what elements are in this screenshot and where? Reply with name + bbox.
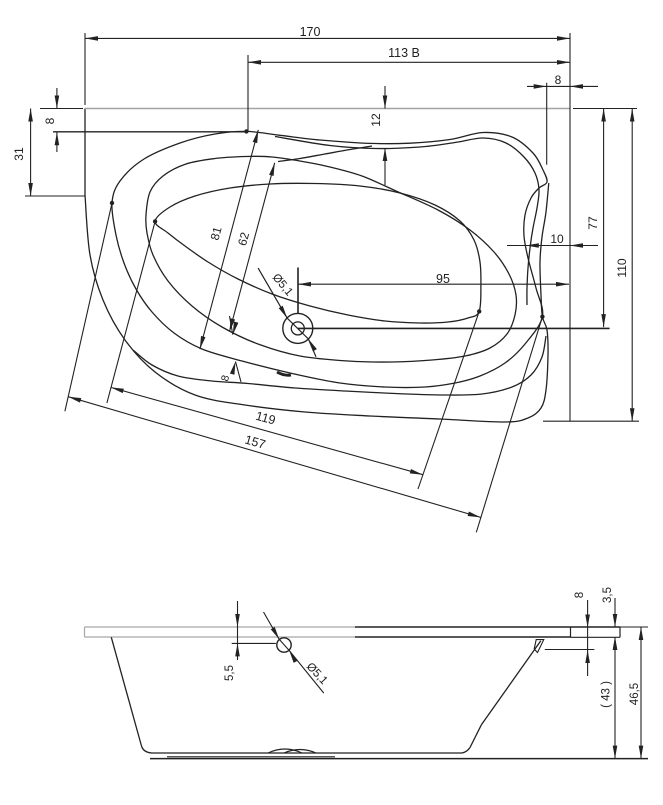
svg-text:95: 95 — [436, 272, 450, 286]
svg-text:8: 8 — [574, 592, 586, 598]
svg-text:3,5: 3,5 — [602, 587, 614, 603]
svg-text:110: 110 — [615, 258, 629, 277]
svg-text:77: 77 — [586, 216, 600, 230]
svg-text:113 B: 113 B — [388, 46, 420, 60]
svg-text:31: 31 — [12, 147, 26, 161]
svg-text:8: 8 — [43, 117, 57, 124]
svg-text:5,5: 5,5 — [224, 665, 236, 681]
svg-text:8: 8 — [555, 73, 562, 87]
svg-text:170: 170 — [300, 25, 321, 39]
svg-text:10: 10 — [550, 232, 564, 246]
svg-text:46,5: 46,5 — [629, 683, 641, 705]
svg-text:12: 12 — [369, 113, 383, 127]
svg-text:( 43 ): ( 43 ) — [601, 681, 613, 708]
